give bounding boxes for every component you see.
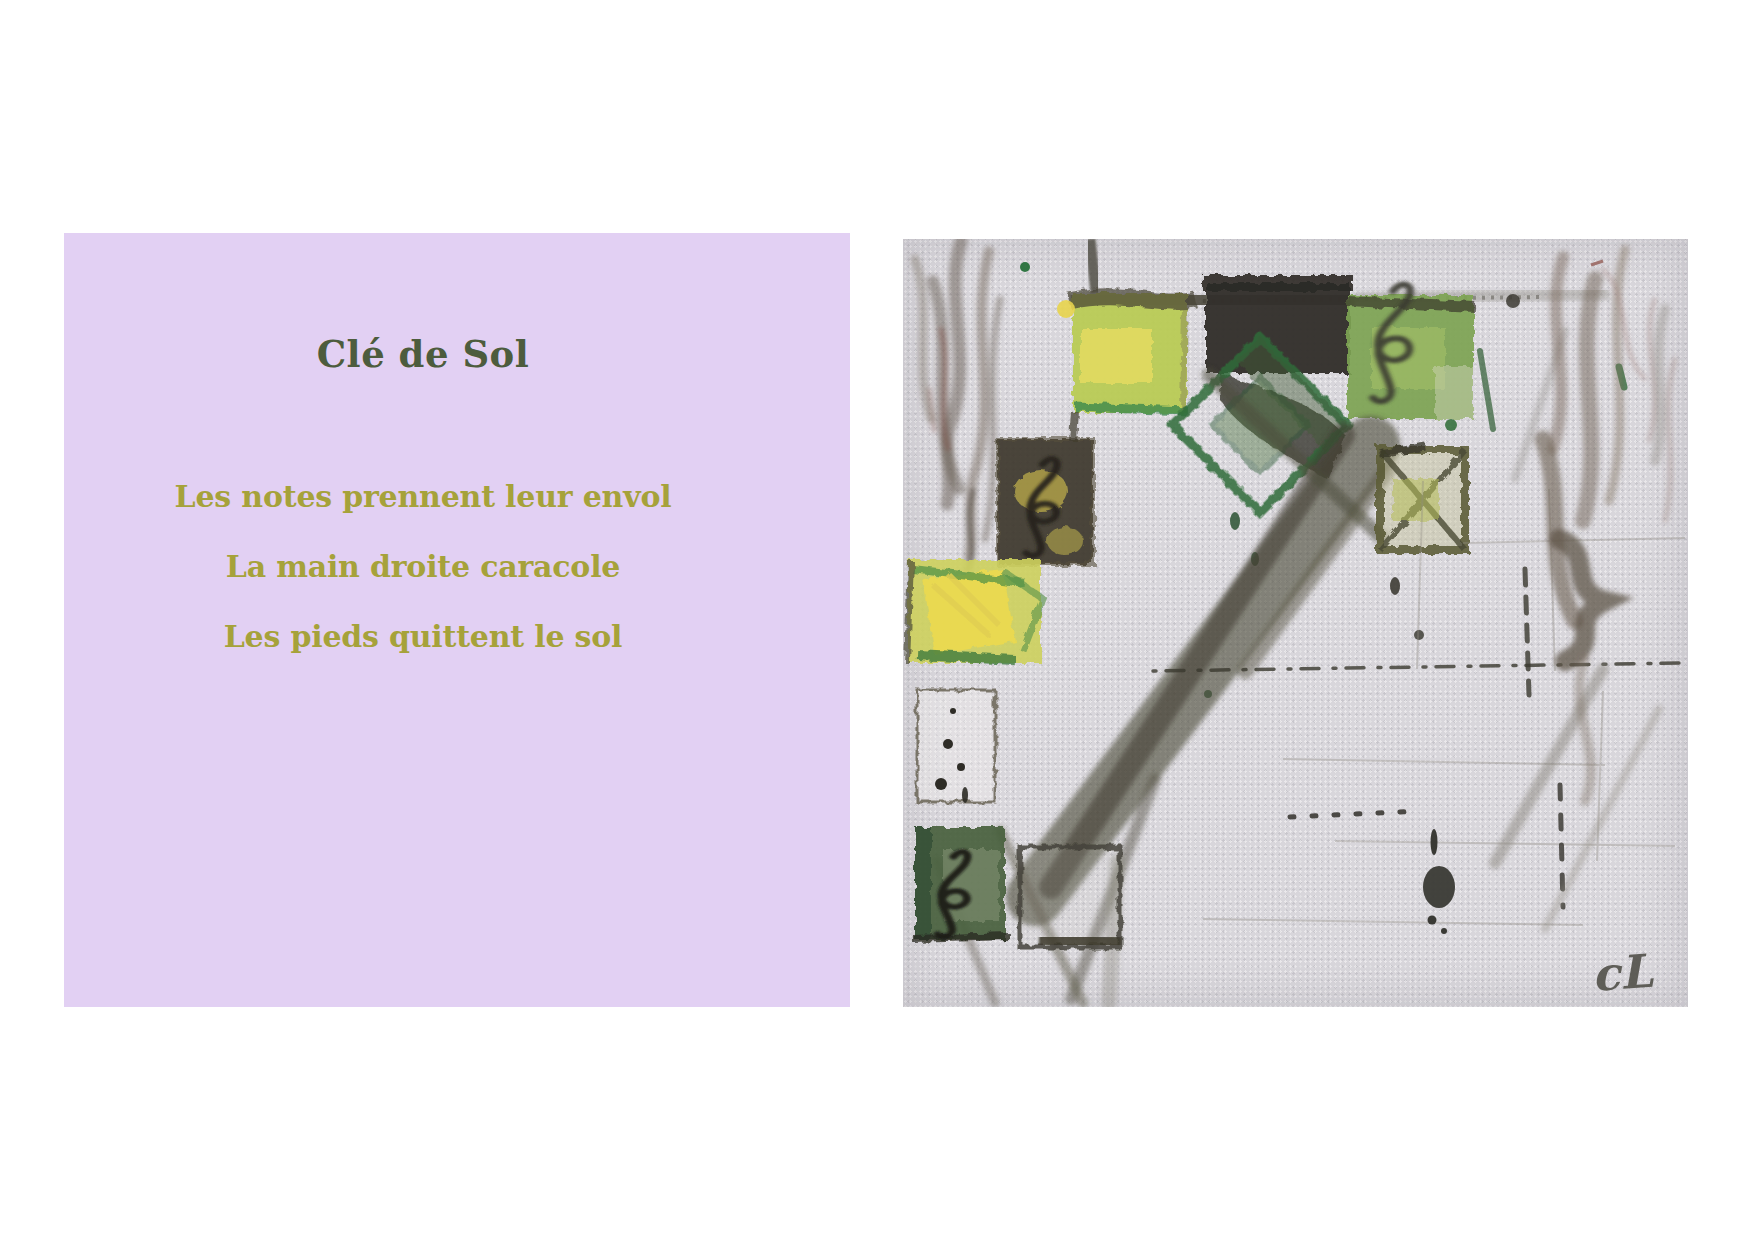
paint-drips	[1423, 829, 1455, 934]
poem-line-1: Les notes prennent leur envol	[64, 462, 782, 532]
artist-signature: cL	[1590, 944, 1656, 1002]
poem-line-3: Les pieds quittent le sol	[64, 602, 782, 672]
poem-title: Clé de Sol	[64, 331, 782, 377]
white-square	[917, 690, 995, 803]
left-brushstrokes	[915, 241, 1000, 571]
poem-panel: Clé de Sol Les notes prennent leur envol…	[64, 233, 850, 1007]
yellow-green-square	[1069, 293, 1195, 413]
treble-clef-square-bottom	[913, 827, 1009, 940]
poem-line-2: La main droite caracole	[64, 532, 782, 602]
green-square	[1347, 295, 1475, 419]
yellow-square	[907, 560, 1043, 663]
poem-text: Les notes prennent leur envol La main dr…	[64, 462, 782, 672]
outlined-square	[1020, 847, 1120, 947]
bottom-dark-band	[1039, 939, 1121, 943]
yellow-dot	[1057, 300, 1075, 318]
abstract-painting: cL	[903, 239, 1688, 1007]
